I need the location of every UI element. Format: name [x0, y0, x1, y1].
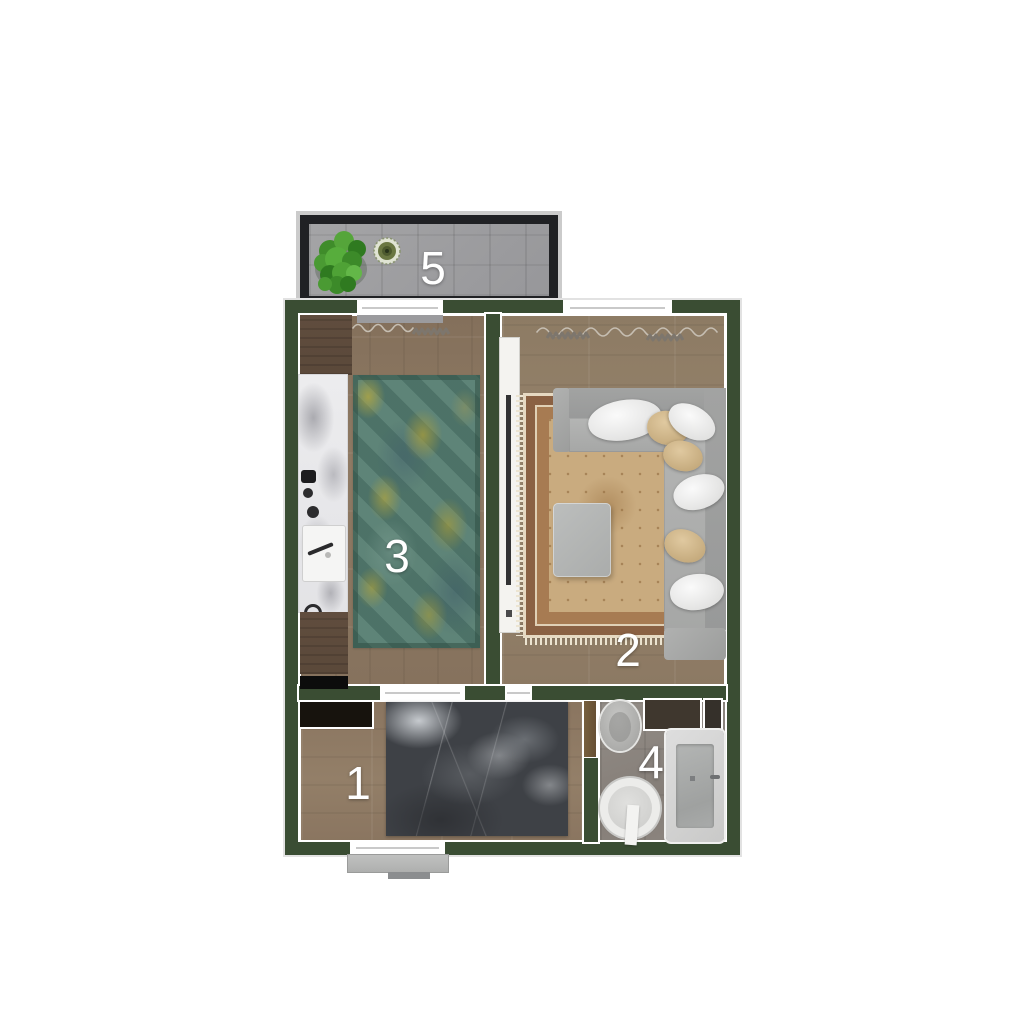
- plant-icon: [310, 229, 378, 295]
- balcony-window-opening: [357, 300, 443, 315]
- coffee-table: [553, 503, 611, 577]
- rug-fringe: [516, 395, 523, 636]
- tub-faucet: [710, 775, 720, 779]
- kitchen-cabinet-top: [300, 315, 352, 375]
- wall-bedroom-bathroom: [584, 758, 598, 842]
- bathroom-cabinet: [705, 700, 721, 729]
- room-label-living-room: 2: [615, 627, 641, 673]
- window-sill: [348, 855, 448, 872]
- bathroom-cabinet: [645, 700, 700, 729]
- bedroom-window-opening: [350, 840, 445, 855]
- wall-center-stub: [465, 686, 505, 700]
- potted-plant-icon: [372, 236, 402, 266]
- curtain-icon: [351, 318, 463, 344]
- kitchen-appliance: [300, 676, 348, 689]
- kitchen-rug: [353, 375, 480, 648]
- floor-plan: 5: [0, 0, 1024, 1024]
- hall-opening: [505, 684, 532, 702]
- curtain-icon: [535, 322, 725, 350]
- bathroom-door: [584, 701, 596, 757]
- wall-kitchen-living: [486, 314, 500, 700]
- bed: [386, 702, 568, 836]
- room-label-bathroom: 4: [638, 739, 664, 785]
- tv: [506, 395, 511, 585]
- tub-drain: [690, 776, 695, 781]
- room-label-bedroom: 1: [345, 760, 371, 806]
- bedroom-doorway: [380, 684, 465, 702]
- cooktop-burner: [307, 506, 319, 518]
- kitchen-cabinet-bottom: [300, 612, 348, 674]
- bathtub: [666, 730, 724, 842]
- wardrobe: [300, 702, 372, 727]
- living-window-opening: [563, 300, 672, 315]
- sink-drain: [325, 552, 331, 558]
- balcony: 5: [296, 211, 562, 308]
- room-label-balcony: 5: [420, 245, 446, 291]
- kettle: [301, 470, 316, 483]
- wall-living-bathroom: [532, 686, 726, 700]
- console-detail: [506, 610, 512, 617]
- cooktop-burner: [303, 488, 313, 498]
- sofa-armrest: [664, 628, 726, 660]
- room-label-kitchen: 3: [384, 533, 410, 579]
- apartment-unit: 3 2 1: [285, 300, 740, 855]
- window-sill-step: [388, 872, 430, 879]
- toilet-seat: [609, 712, 631, 742]
